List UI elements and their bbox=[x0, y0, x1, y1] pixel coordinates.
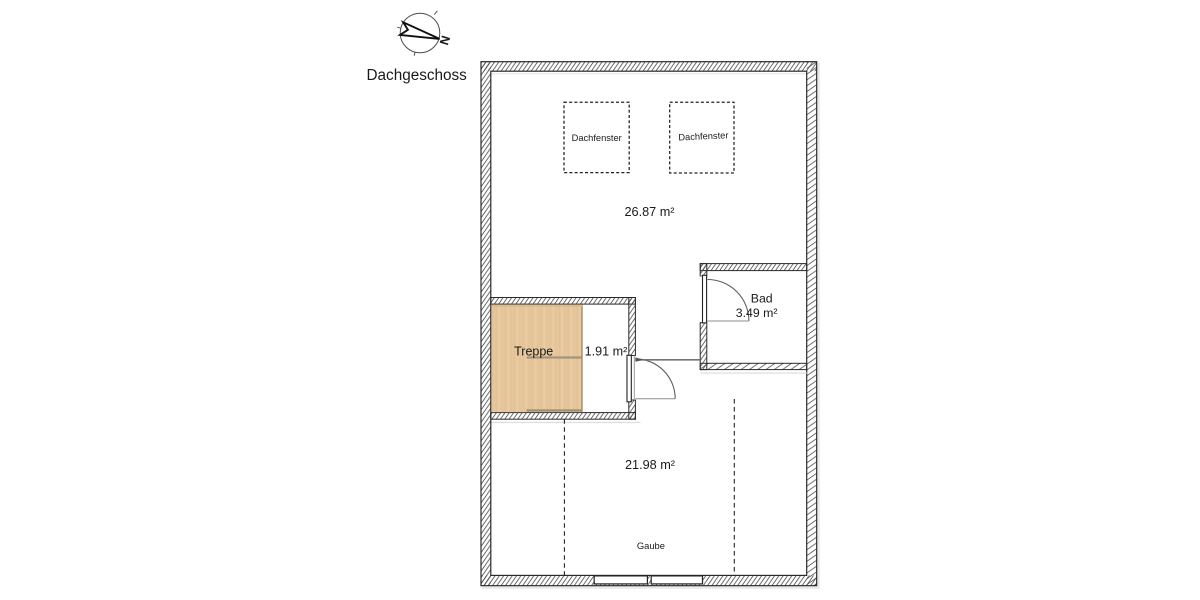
svg-text:26.87 m²: 26.87 m² bbox=[624, 205, 674, 219]
svg-text:3.49 m²: 3.49 m² bbox=[736, 306, 778, 320]
svg-text:Dachgeschoss: Dachgeschoss bbox=[367, 67, 468, 84]
svg-text:21.98 m²: 21.98 m² bbox=[625, 458, 675, 472]
svg-text:Treppe: Treppe bbox=[514, 345, 553, 359]
svg-text:Bad: Bad bbox=[751, 292, 773, 306]
svg-text:1.91 m²: 1.91 m² bbox=[585, 345, 628, 359]
svg-text:N: N bbox=[437, 34, 453, 47]
svg-text:Dachfenster: Dachfenster bbox=[572, 133, 622, 143]
svg-text:Gaube: Gaube bbox=[637, 541, 665, 551]
svg-text:Dachfenster: Dachfenster bbox=[678, 130, 729, 142]
